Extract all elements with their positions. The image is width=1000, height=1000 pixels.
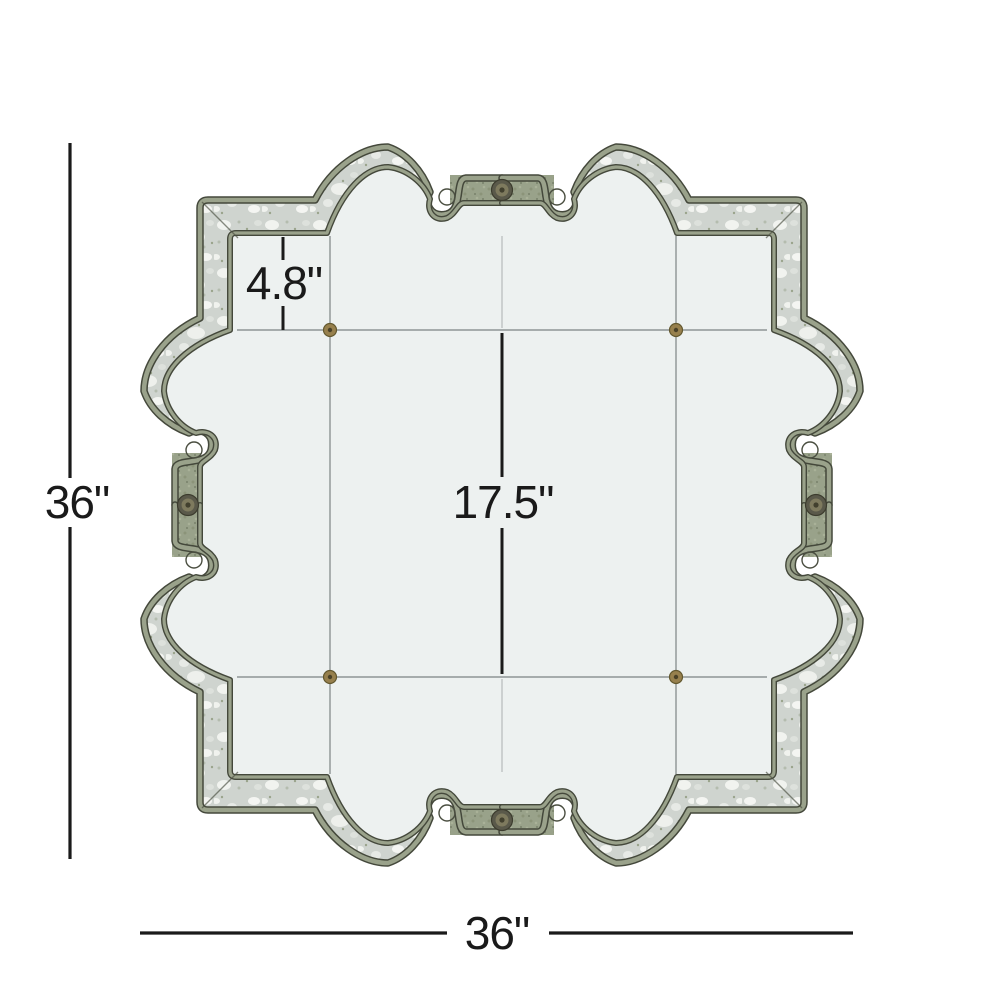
medallion-top xyxy=(492,180,513,201)
rosette-top-left xyxy=(324,324,337,337)
height-dimension: 36" xyxy=(45,143,110,859)
height-dimension-label: 36" xyxy=(45,476,110,528)
width-dimension-label: 36" xyxy=(465,907,530,959)
width-dimension: 36" xyxy=(140,907,853,959)
medallion-right xyxy=(806,495,827,516)
rosette-bottom-right xyxy=(670,671,683,684)
medallion-left xyxy=(178,495,199,516)
medallion-bottom xyxy=(492,810,513,831)
rosette-bottom-left xyxy=(324,671,337,684)
product-dimension-diagram: 36" 36" 4.8" 17.5" xyxy=(0,0,1000,1000)
dimension-diagram-canvas: 36" 36" 4.8" 17.5" xyxy=(0,0,1000,1000)
center-panel-label: 17.5" xyxy=(453,476,554,528)
border-depth-label: 4.8" xyxy=(246,257,322,309)
rosette-top-right xyxy=(670,324,683,337)
